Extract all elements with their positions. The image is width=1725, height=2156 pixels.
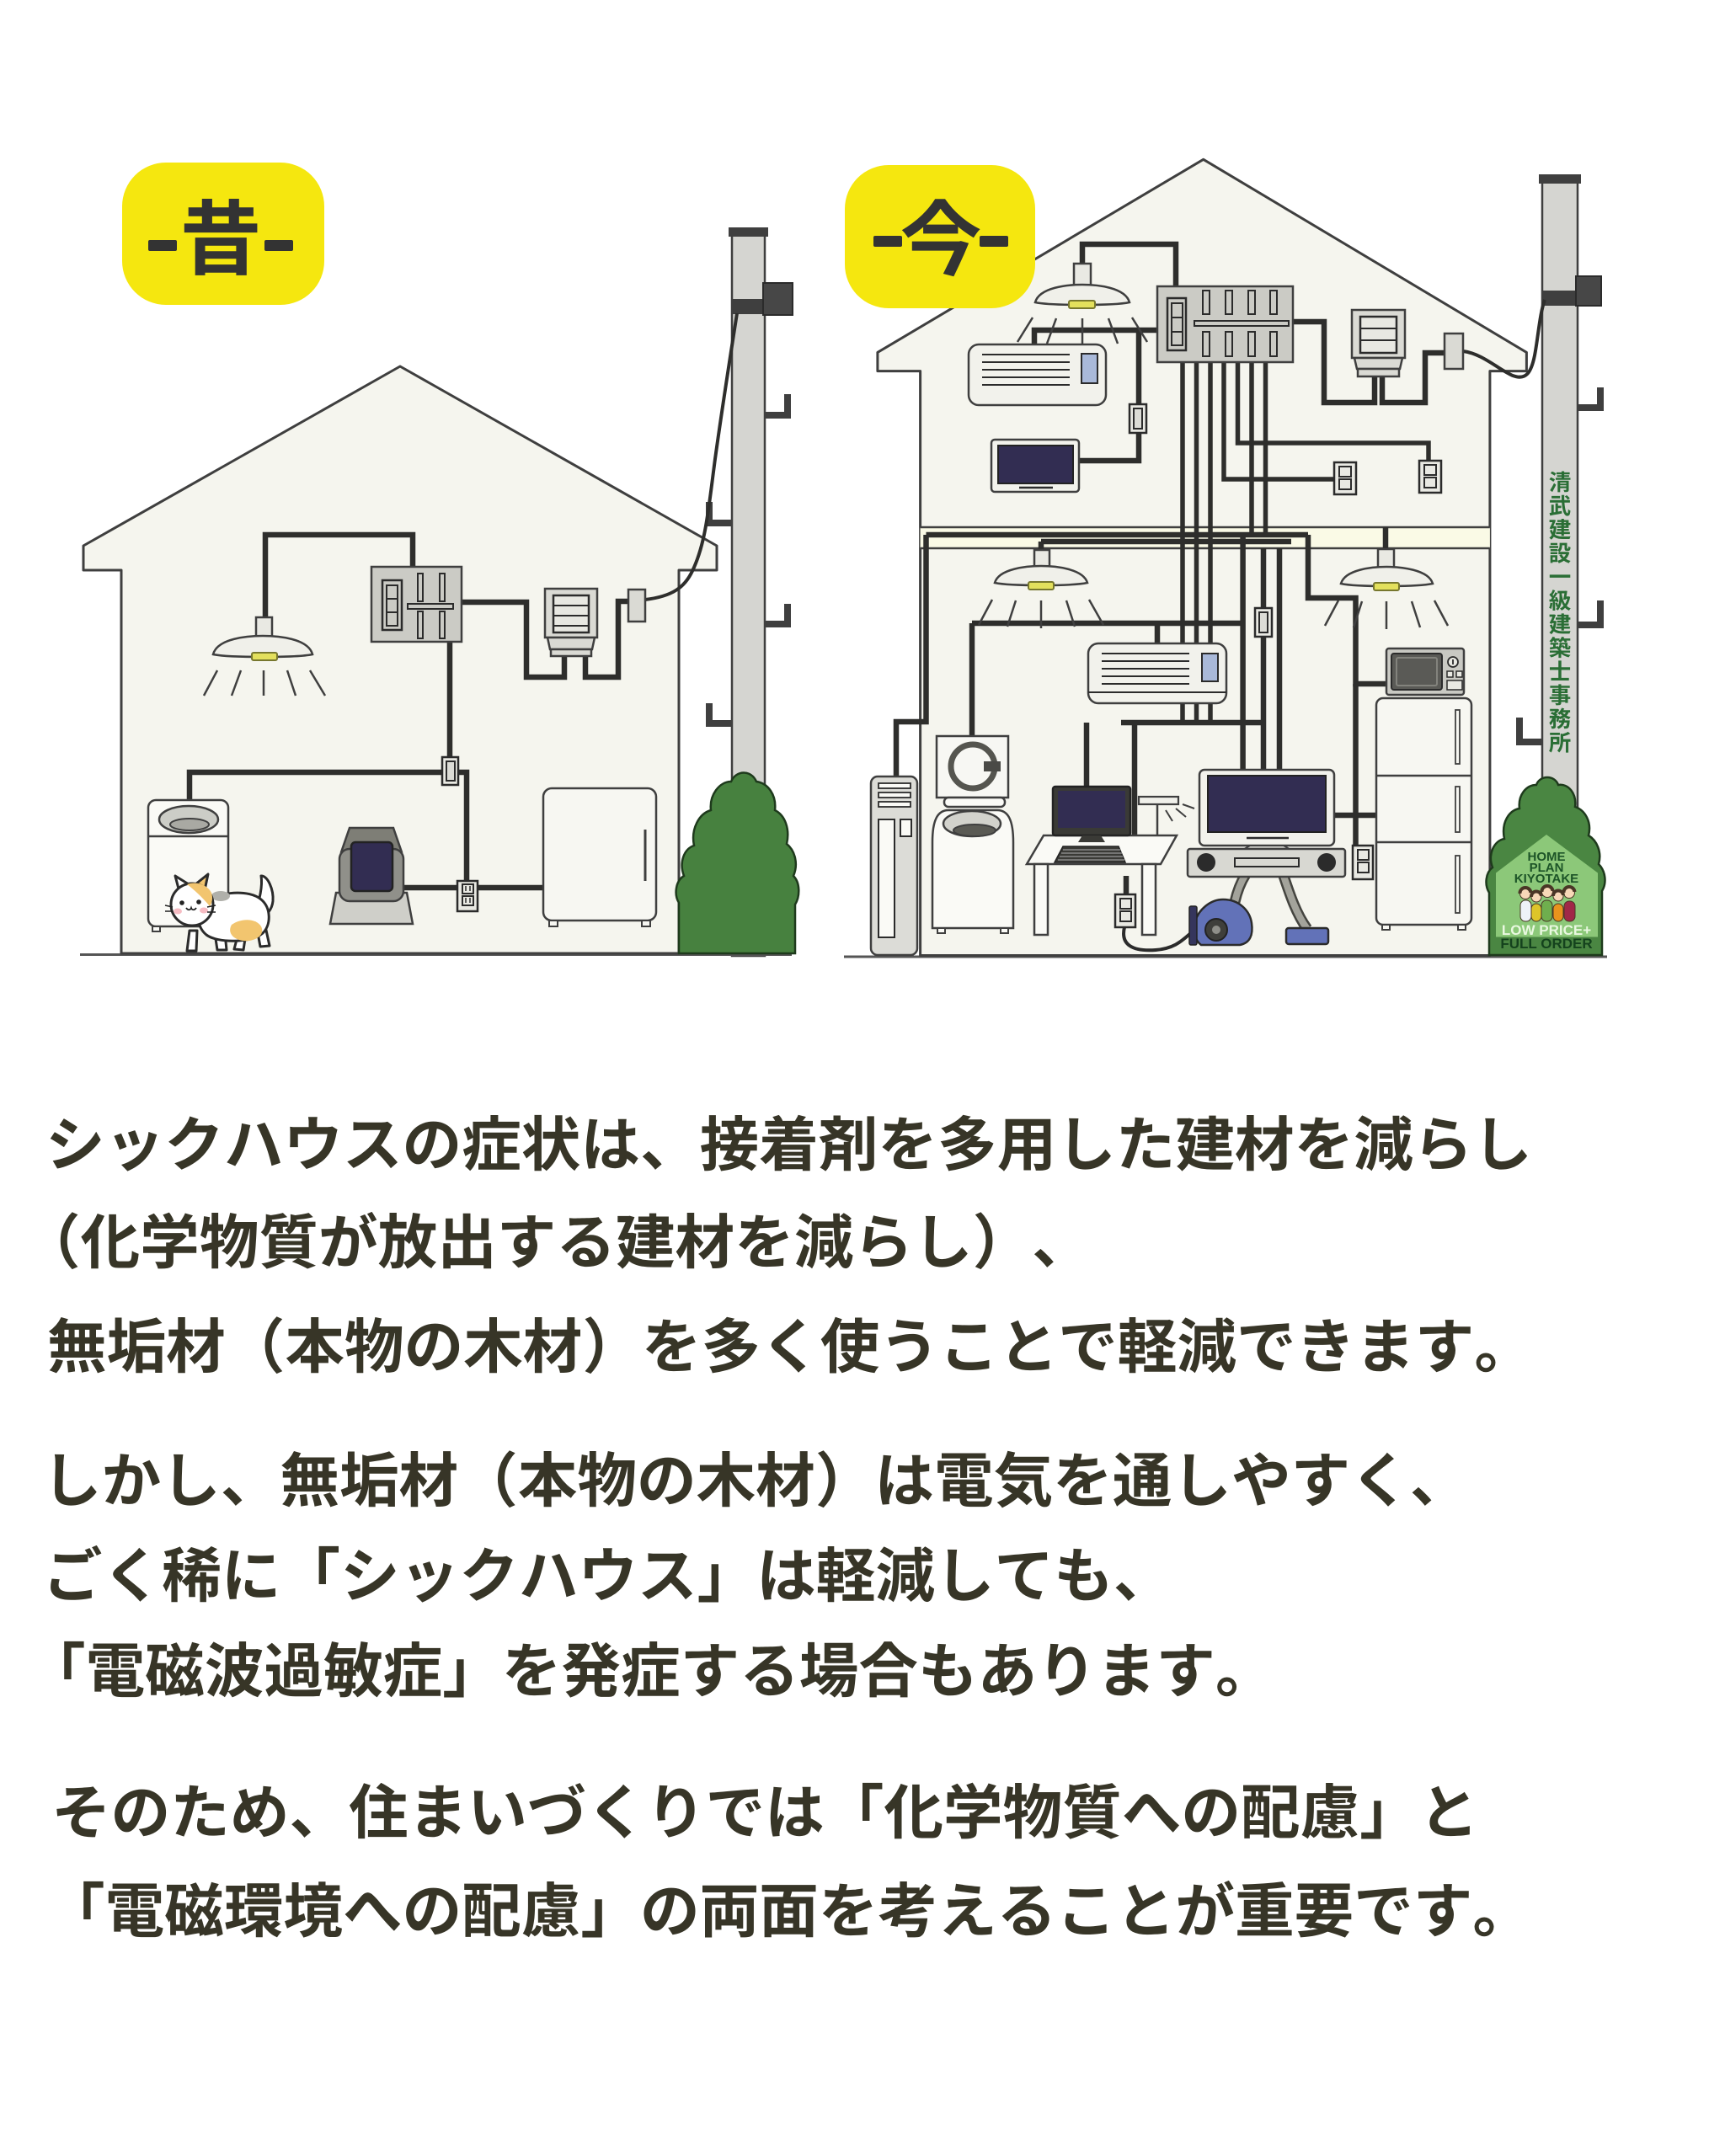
svg-text:KIYOTAKE: KIYOTAKE — [1514, 872, 1578, 886]
svg-text:FULL ORDER: FULL ORDER — [1500, 936, 1592, 952]
